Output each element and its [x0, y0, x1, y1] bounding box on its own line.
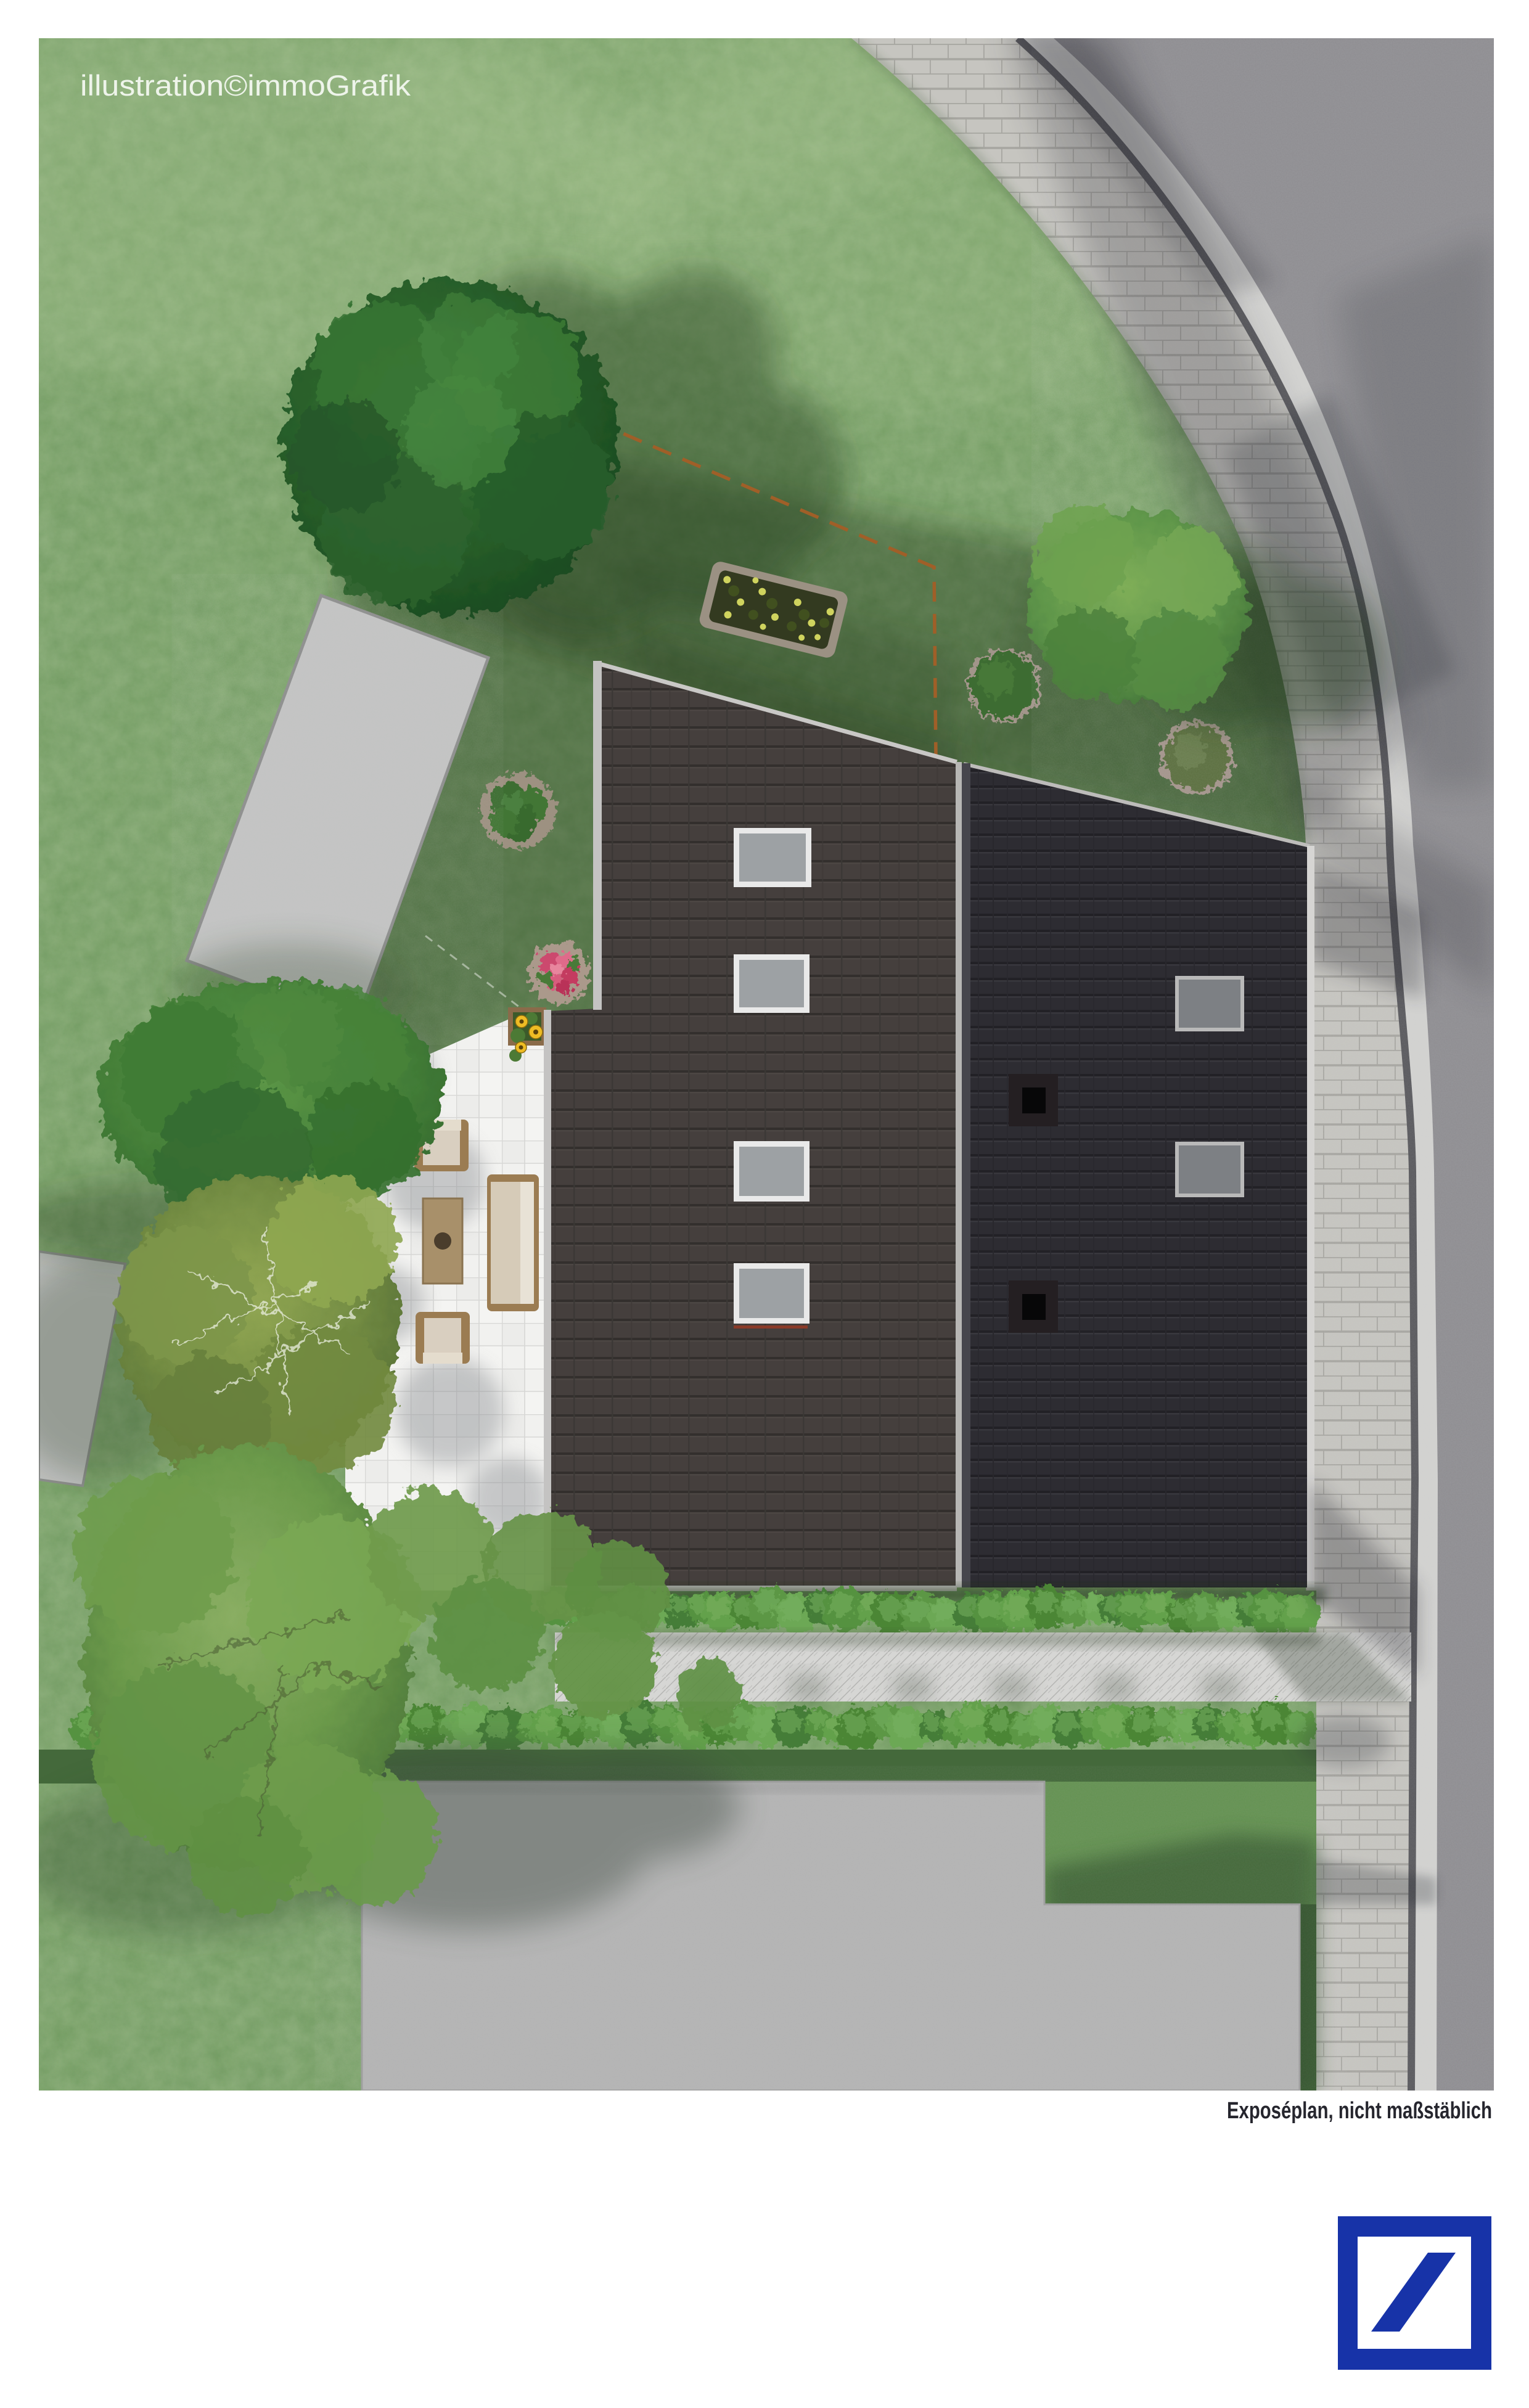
- svg-text:illustration©immoGrafik: illustration©immoGrafik: [80, 69, 411, 102]
- svg-text:Exposéplan, nicht maßstäblich: Exposéplan, nicht maßstäblich: [1227, 2098, 1492, 2124]
